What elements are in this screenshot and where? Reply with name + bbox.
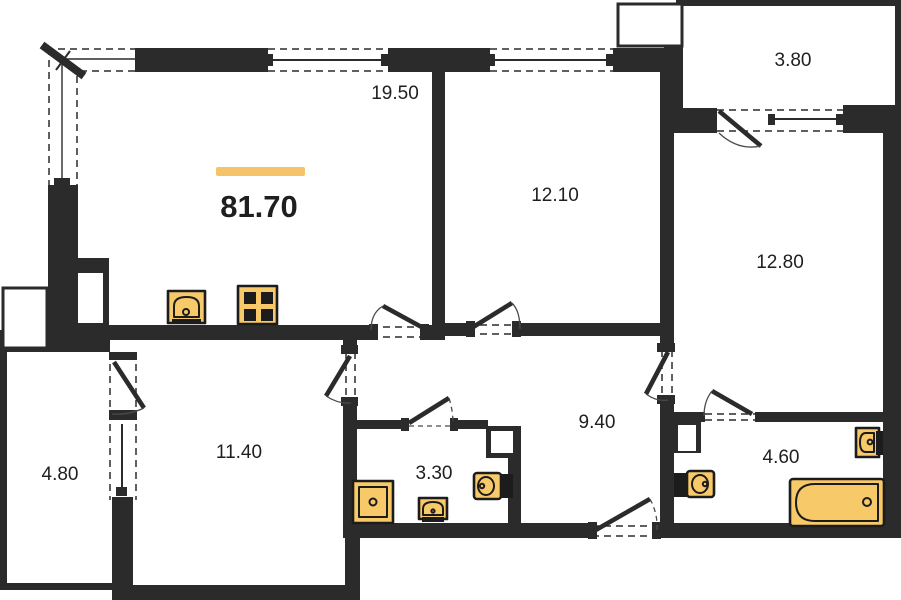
bedroom-top-bottom-wall-right — [520, 323, 674, 336]
balcony-outlines — [0, 0, 901, 590]
bathroom-large-door-leaf — [712, 391, 752, 414]
balcony-left-door-head-bar — [109, 352, 137, 360]
bathroom-small-door-leaf — [409, 398, 449, 423]
bedroom-right-door-leaf — [646, 352, 668, 394]
balcony-top-window-nub-right — [836, 114, 843, 125]
room-label-balcony-top: 3.80 — [775, 50, 812, 71]
shower-tray-icon — [353, 481, 393, 523]
floor-plan-svg: 81.70 19.50 12.10 3.80 12.80 4.80 11.40 … — [0, 0, 901, 600]
bedroom-right-door-jamb-top — [657, 343, 675, 352]
balcony-top-window-nub-left — [768, 114, 775, 125]
stove-burner-3 — [244, 309, 256, 321]
balcony-left-door-leaf — [114, 362, 144, 408]
room-label-bathroom-large: 4.60 — [763, 447, 800, 468]
total-area-accent-bar — [216, 167, 305, 176]
total-area-label: 81.70 — [220, 189, 298, 224]
bedroom-left-door-jamb-top — [341, 345, 358, 354]
bedroom-top-window-nub-left — [488, 54, 495, 66]
kitchen-sink-icon — [168, 291, 205, 324]
stove-burner-4 — [261, 309, 273, 321]
wall-niche — [78, 273, 103, 323]
bathroom-small-duct — [491, 431, 513, 453]
stove-burner-2 — [261, 292, 273, 304]
stove-burner-1 — [244, 292, 256, 304]
room-label-bedroom-top: 12.10 — [531, 185, 579, 206]
bathroom-large-top-wall-right — [755, 412, 883, 422]
washbasin-large-icon — [856, 428, 883, 457]
bedroom-top-window-nub-right — [606, 54, 613, 66]
room-label-hallway: 9.40 — [579, 412, 616, 433]
bathroom-small-door-jamb-left — [401, 418, 409, 431]
room-label-balcony-left: 4.80 — [42, 464, 79, 485]
balcony-left-left-edge — [0, 352, 7, 590]
washbasin-small-icon — [419, 498, 447, 522]
living-door-threshold — [371, 327, 427, 337]
living-door-jamb-left — [369, 324, 378, 340]
bedroom-left-door-jamb-bottom — [341, 397, 358, 406]
top-wall-pier-2 — [388, 48, 490, 72]
living-bedroom-divider-wall — [432, 72, 445, 328]
stove-icon — [238, 286, 277, 324]
roof-niche-box — [618, 4, 682, 46]
balcony-left-bottom-edge — [0, 583, 112, 590]
right-exterior-wall — [883, 105, 901, 538]
washbasin-small-base — [422, 517, 444, 522]
bathroom-small-top-wall-left — [350, 420, 408, 429]
top-wall-pier-3 — [613, 48, 662, 72]
walls — [0, 42, 901, 600]
corner-window-end-nub — [54, 178, 70, 187]
kitchen-sink-base — [172, 319, 201, 324]
balcony-top-right-edge — [895, 0, 901, 112]
toilet-small-icon — [474, 473, 513, 499]
living-window-nub-left — [266, 54, 273, 66]
entrance-door-jamb-right — [652, 522, 661, 539]
balcony-top-door-leaf — [719, 111, 761, 146]
hall-right-wall-lower — [660, 397, 674, 523]
living-window-nub-right — [381, 54, 388, 66]
room-label-living-kitchen: 19.50 — [371, 83, 419, 104]
bottom-wall-left-of-entry — [345, 523, 592, 538]
bedroom-left-left-wall — [112, 497, 133, 592]
bathroom-small-door-jamb-right — [450, 418, 458, 431]
bathroom-large-door-arc — [704, 391, 712, 416]
room-label-bedroom-right: 12.80 — [756, 252, 804, 273]
fixtures — [168, 286, 884, 526]
bedroom-top-bottom-wall-left — [445, 323, 468, 336]
top-wall-pier-1 — [135, 48, 268, 72]
balcony-left-window-nub — [116, 487, 127, 496]
floor-plan: 81.70 19.50 12.10 3.80 12.80 4.80 11.40 … — [0, 0, 901, 600]
toilet-large-icon — [674, 471, 714, 497]
bedroom-left-bottom-wall — [112, 585, 360, 600]
room-label-bedroom-left: 11.40 — [216, 442, 262, 463]
bathroom-large-door-threshold — [705, 414, 755, 420]
exterior-duct-box — [3, 288, 47, 348]
washbasin-large-base — [876, 431, 883, 455]
bathtub-icon — [790, 479, 884, 526]
balcony-top-top-edge — [676, 0, 901, 6]
room-label-bathroom-small: 3.30 — [416, 463, 453, 484]
balcony-top-bottom-wall-left — [674, 108, 717, 133]
bathroom-large-duct — [678, 425, 696, 451]
